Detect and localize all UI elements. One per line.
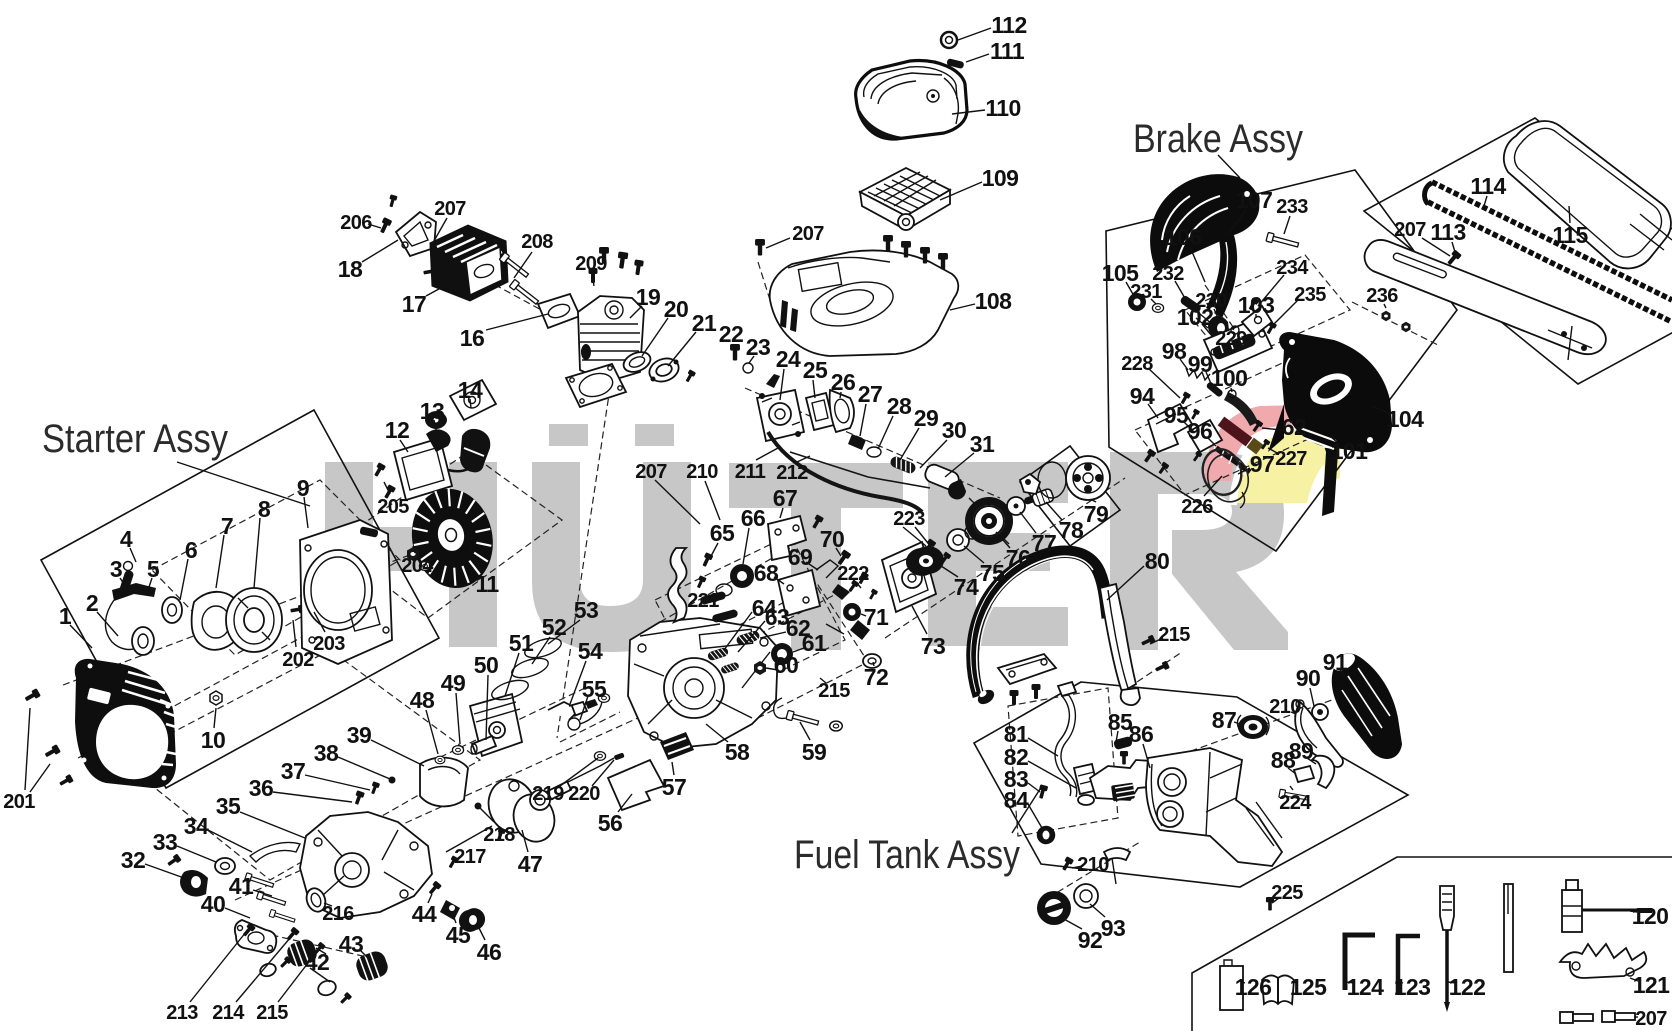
svg-text:91: 91 — [1323, 649, 1348, 675]
svg-text:93: 93 — [1101, 915, 1125, 941]
svg-text:43: 43 — [339, 931, 363, 957]
svg-text:Fuel Tank Assy: Fuel Tank Assy — [794, 833, 1020, 877]
svg-text:6: 6 — [185, 537, 197, 563]
svg-text:210: 210 — [1269, 696, 1301, 718]
svg-text:80: 80 — [1145, 548, 1169, 574]
svg-text:55: 55 — [582, 676, 607, 702]
svg-text:4: 4 — [120, 526, 133, 552]
svg-text:121: 121 — [1633, 972, 1670, 998]
svg-text:96: 96 — [1188, 418, 1212, 444]
svg-text:215: 215 — [1158, 624, 1190, 646]
svg-text:86: 86 — [1129, 721, 1153, 747]
svg-text:104: 104 — [1387, 406, 1424, 432]
svg-text:215: 215 — [818, 680, 850, 702]
svg-text:34: 34 — [184, 813, 209, 839]
svg-text:35: 35 — [216, 793, 241, 819]
svg-text:47: 47 — [518, 851, 542, 877]
svg-text:98: 98 — [1162, 338, 1187, 364]
svg-text:30: 30 — [942, 417, 966, 443]
svg-text:49: 49 — [441, 670, 465, 696]
svg-text:37: 37 — [281, 758, 305, 784]
svg-text:113: 113 — [1430, 219, 1465, 245]
svg-text:66: 66 — [741, 505, 765, 531]
svg-text:68: 68 — [754, 560, 779, 586]
svg-text:12: 12 — [385, 417, 409, 443]
svg-text:71: 71 — [864, 604, 889, 630]
svg-text:58: 58 — [725, 739, 750, 765]
svg-text:215: 215 — [256, 1002, 288, 1024]
svg-text:73: 73 — [921, 633, 945, 659]
svg-text:203: 203 — [313, 633, 345, 655]
svg-text:102: 102 — [1177, 304, 1214, 330]
svg-text:109: 109 — [982, 165, 1019, 191]
svg-text:57: 57 — [662, 774, 686, 800]
svg-text:76: 76 — [1006, 545, 1030, 571]
svg-text:229: 229 — [1215, 328, 1247, 350]
svg-text:217: 217 — [454, 846, 486, 868]
svg-text:16: 16 — [460, 325, 484, 351]
svg-text:11: 11 — [475, 571, 499, 597]
svg-text:40: 40 — [201, 891, 225, 917]
svg-text:87: 87 — [1212, 707, 1236, 733]
svg-text:90: 90 — [1296, 665, 1320, 691]
svg-text:5: 5 — [147, 556, 160, 582]
svg-text:205: 205 — [377, 496, 409, 518]
svg-text:108: 108 — [975, 288, 1012, 314]
svg-text:32: 32 — [121, 847, 145, 873]
svg-text:45: 45 — [446, 922, 471, 948]
svg-text:99: 99 — [1188, 351, 1212, 377]
svg-text:10: 10 — [201, 727, 225, 753]
svg-text:209: 209 — [575, 253, 607, 275]
svg-text:106: 106 — [1165, 224, 1202, 250]
svg-text:207: 207 — [792, 223, 824, 245]
svg-text:56: 56 — [598, 810, 622, 836]
svg-text:13: 13 — [420, 398, 444, 424]
svg-text:51: 51 — [509, 630, 534, 656]
svg-text:226: 226 — [1181, 496, 1213, 518]
svg-text:126: 126 — [1235, 974, 1272, 1000]
svg-text:18: 18 — [338, 256, 363, 282]
svg-text:120: 120 — [1632, 903, 1669, 929]
svg-text:2: 2 — [86, 590, 98, 616]
svg-text:210: 210 — [686, 461, 718, 483]
svg-text:213: 213 — [166, 1002, 198, 1024]
svg-text:210: 210 — [1077, 854, 1109, 876]
svg-text:94: 94 — [1130, 383, 1155, 409]
svg-text:236: 236 — [1366, 285, 1398, 307]
svg-text:201: 201 — [3, 791, 35, 813]
svg-text:211: 211 — [735, 461, 766, 483]
svg-text:204: 204 — [401, 555, 434, 577]
svg-text:78: 78 — [1059, 517, 1084, 543]
svg-text:214: 214 — [212, 1002, 245, 1024]
svg-text:9: 9 — [297, 475, 309, 501]
svg-text:39: 39 — [347, 722, 371, 748]
svg-text:206: 206 — [340, 212, 372, 234]
svg-text:17: 17 — [402, 291, 426, 317]
svg-text:29: 29 — [914, 405, 938, 431]
svg-text:64: 64 — [752, 595, 777, 621]
svg-text:48: 48 — [410, 687, 435, 713]
svg-text:202: 202 — [282, 649, 314, 671]
svg-text:Starter Assy: Starter Assy — [42, 417, 228, 461]
svg-text:50: 50 — [474, 652, 498, 678]
svg-text:77: 77 — [1032, 530, 1056, 556]
svg-text:207: 207 — [434, 198, 466, 220]
svg-text:7: 7 — [221, 513, 233, 539]
svg-text:125: 125 — [1290, 974, 1327, 1000]
svg-text:60: 60 — [774, 652, 798, 678]
svg-text:84: 84 — [1004, 787, 1029, 813]
svg-text:62: 62 — [1282, 414, 1306, 440]
svg-text:122: 122 — [1449, 974, 1486, 1000]
svg-text:216: 216 — [322, 903, 354, 925]
svg-text:41: 41 — [229, 873, 254, 899]
svg-text:100: 100 — [1211, 365, 1248, 391]
svg-text:67: 67 — [773, 485, 797, 511]
svg-text:59: 59 — [802, 739, 826, 765]
svg-text:235: 235 — [1294, 284, 1326, 306]
svg-text:Brake Assy: Brake Assy — [1133, 117, 1303, 161]
svg-text:227: 227 — [1275, 448, 1307, 470]
svg-text:220: 220 — [568, 783, 600, 805]
svg-text:208: 208 — [521, 231, 553, 253]
svg-text:46: 46 — [477, 939, 501, 965]
svg-text:79: 79 — [1084, 501, 1108, 527]
svg-text:19: 19 — [636, 284, 660, 310]
svg-text:224: 224 — [1279, 792, 1312, 814]
svg-text:207: 207 — [1635, 1008, 1667, 1030]
svg-text:234: 234 — [1276, 257, 1309, 279]
svg-text:219: 219 — [532, 783, 564, 805]
svg-text:123: 123 — [1394, 974, 1431, 1000]
svg-text:222: 222 — [837, 563, 869, 585]
svg-text:107: 107 — [1236, 187, 1273, 213]
svg-text:28: 28 — [887, 393, 912, 419]
svg-text:69: 69 — [788, 544, 812, 570]
svg-text:62: 62 — [786, 615, 810, 641]
svg-text:33: 33 — [153, 829, 177, 855]
svg-text:97: 97 — [1250, 451, 1274, 477]
svg-text:70: 70 — [820, 526, 844, 552]
svg-text:223: 223 — [893, 508, 925, 530]
svg-text:53: 53 — [574, 597, 598, 623]
svg-text:228: 228 — [1121, 353, 1153, 375]
svg-text:92: 92 — [1078, 927, 1102, 953]
svg-text:232: 232 — [1152, 263, 1184, 285]
svg-text:218: 218 — [483, 824, 515, 846]
svg-text:111: 111 — [990, 38, 1025, 64]
svg-text:74: 74 — [954, 574, 979, 600]
svg-text:26: 26 — [831, 369, 855, 395]
svg-text:25: 25 — [803, 357, 828, 383]
svg-text:212: 212 — [776, 462, 808, 484]
svg-text:110: 110 — [985, 95, 1020, 121]
svg-text:207: 207 — [635, 461, 667, 483]
svg-text:22: 22 — [719, 321, 743, 347]
svg-text:207: 207 — [1394, 219, 1426, 241]
svg-text:27: 27 — [858, 381, 882, 407]
svg-text:233: 233 — [1276, 196, 1308, 218]
svg-text:52: 52 — [542, 614, 566, 640]
svg-text:65: 65 — [710, 520, 735, 546]
svg-text:114: 114 — [1470, 173, 1506, 199]
svg-text:24: 24 — [776, 346, 801, 372]
svg-text:115: 115 — [1552, 222, 1588, 248]
svg-text:124: 124 — [1347, 974, 1384, 1000]
svg-text:54: 54 — [578, 638, 603, 664]
svg-text:75: 75 — [980, 560, 1005, 586]
svg-text:38: 38 — [314, 740, 339, 766]
svg-text:72: 72 — [864, 664, 888, 690]
svg-text:23: 23 — [746, 334, 770, 360]
svg-text:44: 44 — [412, 901, 437, 927]
svg-text:36: 36 — [249, 775, 273, 801]
svg-text:112: 112 — [991, 12, 1026, 38]
